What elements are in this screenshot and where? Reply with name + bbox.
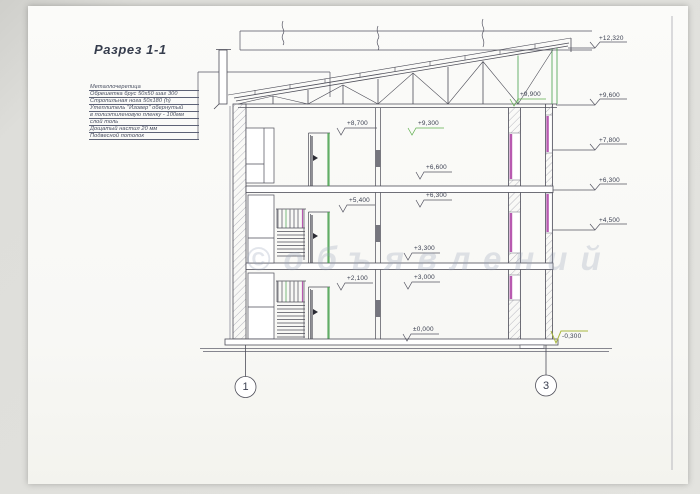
window-glazing: [546, 194, 548, 232]
drawing-title: Разрез 1-1: [94, 42, 167, 57]
elevation-mark-3000: +3,000: [414, 274, 435, 281]
left-exterior-wall: [233, 104, 246, 339]
axis-bubble-3: 3: [535, 380, 557, 392]
elevation-mark-6600: +6,600: [426, 164, 447, 171]
foundation-ground: [200, 339, 612, 352]
stair-steps: [277, 302, 305, 337]
window-glazing: [510, 276, 513, 299]
chimney: [214, 50, 231, 110]
elevation-mark-5400: +5,400: [349, 197, 370, 204]
scanned-drawing-page: Разрез 1-1 Металлочерепица Обрешетка бру…: [0, 0, 700, 494]
elevation-mark-3300: +3,300: [414, 245, 435, 252]
elevation-mark-6300-right: +6,300: [599, 177, 620, 184]
elevation-mark-6300-interior: +6,300: [426, 192, 447, 199]
elevation-mark-9300: +9,300: [418, 120, 439, 127]
elevation-mark-minus-0300: -0,300: [562, 333, 581, 340]
axis-bubbles: [235, 345, 557, 398]
axis-bubble-1: 1: [235, 381, 257, 393]
elevation-mark-2100: +2,100: [347, 275, 368, 282]
elevation-mark-9900: +9,900: [520, 91, 541, 98]
door-1f: [309, 287, 331, 339]
window-glazing: [510, 134, 513, 179]
note-line: Подвесной потолок: [89, 132, 199, 140]
stairwell: [246, 128, 306, 339]
elevation-mark-4500: +4,500: [599, 217, 620, 224]
elevation-mark-9600: +9,600: [599, 92, 620, 99]
doors: [309, 133, 331, 339]
top-dimension-lines: [240, 19, 592, 50]
purlin-ticks: [255, 44, 535, 95]
elevation-mark-8700: +8,700: [347, 120, 368, 127]
window-glazing: [546, 116, 548, 152]
door-3f: [309, 133, 331, 186]
elevation-mark-0000: ±0,000: [413, 326, 434, 333]
elevation-mark-7800: +7,800: [599, 137, 620, 144]
walls: [230, 104, 553, 342]
ground-line: [200, 349, 612, 352]
elevation-mark-12320: +12,320: [599, 35, 624, 42]
